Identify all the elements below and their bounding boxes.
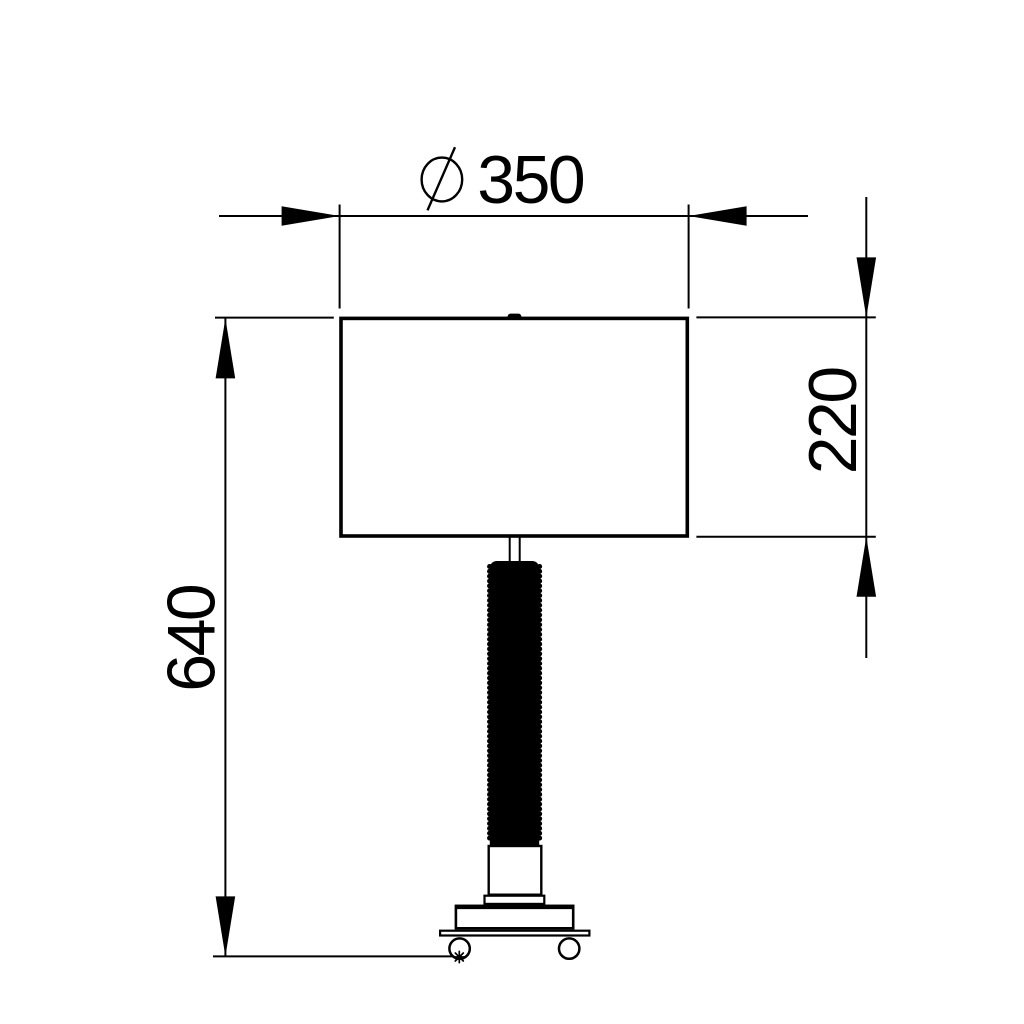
svg-text:220: 220 — [795, 368, 871, 475]
svg-text:350: 350 — [477, 142, 584, 218]
svg-text:640: 640 — [154, 585, 230, 692]
